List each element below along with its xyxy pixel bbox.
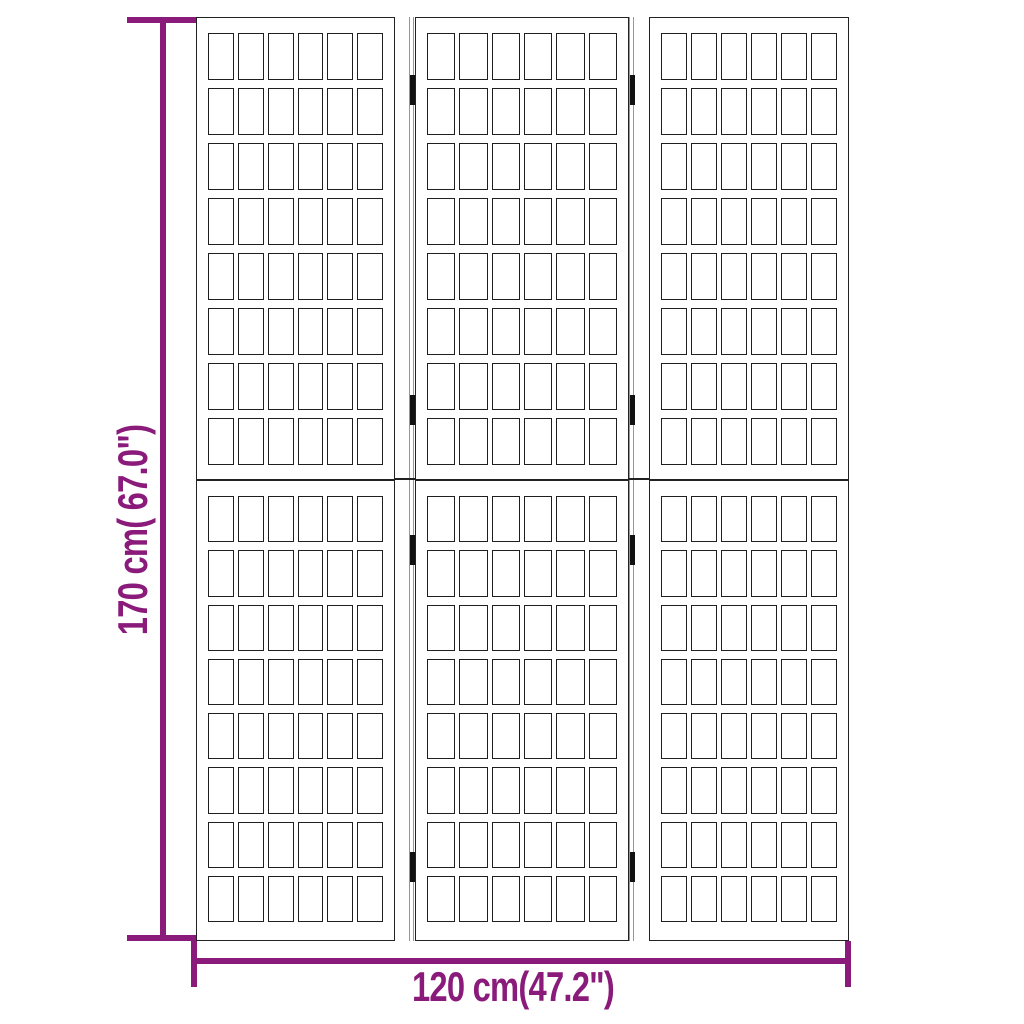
height-dimension-cap-top	[127, 17, 196, 23]
panel-upper-section	[196, 17, 395, 480]
lattice-cell	[208, 418, 234, 465]
lattice-cell	[268, 605, 294, 651]
lattice-cell	[811, 308, 837, 355]
lattice-cell	[781, 605, 807, 651]
lattice-cell	[661, 143, 687, 190]
lattice-cell	[427, 496, 455, 542]
lattice-cell	[327, 198, 353, 245]
lattice-cell	[357, 767, 383, 813]
lattice-cell	[524, 496, 552, 542]
panel-lower-section	[196, 480, 395, 941]
lattice-cell	[556, 33, 584, 80]
lattice-cell	[298, 713, 324, 759]
lattice-cell	[751, 659, 777, 705]
lattice-cell	[661, 418, 687, 465]
lattice-cell	[492, 713, 520, 759]
lattice-cell	[691, 659, 717, 705]
lattice-cell	[427, 418, 455, 465]
lattice-cell	[208, 550, 234, 596]
lattice-cell	[298, 363, 324, 410]
lattice-cell	[327, 767, 353, 813]
lattice-cell	[691, 33, 717, 80]
lattice-cell	[589, 605, 617, 651]
lattice-cell	[556, 822, 584, 868]
lattice-cell	[781, 418, 807, 465]
height-dimension-cap-bottom	[127, 935, 196, 941]
lattice-cell	[357, 659, 383, 705]
lattice-cell	[524, 253, 552, 300]
lattice-cell	[524, 822, 552, 868]
lattice-cell	[492, 605, 520, 651]
lattice-cell	[327, 496, 353, 542]
lattice-cell	[691, 143, 717, 190]
lattice-cell	[357, 33, 383, 80]
lattice-cell	[721, 253, 747, 300]
lattice-cell	[238, 496, 264, 542]
lattice-cell	[357, 496, 383, 542]
lattice-cell	[661, 198, 687, 245]
lattice-cell	[524, 88, 552, 135]
lattice-cell	[556, 876, 584, 922]
lattice-cell	[459, 822, 487, 868]
lattice-cell	[492, 363, 520, 410]
lattice-cell	[327, 253, 353, 300]
lattice-cell	[268, 88, 294, 135]
lattice-cell	[781, 308, 807, 355]
lattice-cell	[781, 496, 807, 542]
hinge-mark	[630, 75, 635, 105]
screen-panel-1	[196, 17, 395, 941]
lattice-cell	[781, 198, 807, 245]
lattice-cell	[298, 767, 324, 813]
lattice-cell	[357, 363, 383, 410]
lattice-cell	[556, 198, 584, 245]
lattice-cell	[268, 198, 294, 245]
lattice-cell	[298, 308, 324, 355]
product-dimension-diagram: 170 cm( 67.0") 120 cm(47.2")	[0, 0, 1024, 1024]
lattice-cell	[556, 496, 584, 542]
lattice-cell	[811, 822, 837, 868]
lattice-cell	[268, 876, 294, 922]
lattice-cell	[661, 876, 687, 922]
lattice-cell	[811, 550, 837, 596]
lattice-cell	[661, 308, 687, 355]
lattice-cell	[427, 363, 455, 410]
lattice-cell	[751, 876, 777, 922]
lattice-cell	[691, 767, 717, 813]
lattice-cell	[459, 496, 487, 542]
lattice-cell	[589, 363, 617, 410]
lattice-cell	[427, 33, 455, 80]
lattice-cell	[298, 33, 324, 80]
lattice-cell	[589, 496, 617, 542]
lattice-cell	[721, 659, 747, 705]
lattice-cell	[327, 88, 353, 135]
lattice-cell	[208, 363, 234, 410]
lattice-cell	[721, 822, 747, 868]
lattice-cell	[524, 33, 552, 80]
lattice-cell	[327, 418, 353, 465]
lattice-cell	[492, 659, 520, 705]
lattice-cell	[781, 876, 807, 922]
lattice-cell	[524, 876, 552, 922]
hinge-mark	[630, 535, 635, 565]
lattice-cell	[492, 33, 520, 80]
panel-lower-section	[415, 480, 629, 941]
lattice-cell	[298, 496, 324, 542]
lattice-cell	[721, 33, 747, 80]
lattice-cell	[208, 88, 234, 135]
lattice-cell	[459, 876, 487, 922]
height-dimension-line	[160, 17, 166, 941]
lattice-cell	[427, 308, 455, 355]
lattice-cell	[556, 308, 584, 355]
lattice-cell	[661, 253, 687, 300]
lattice-cell	[811, 659, 837, 705]
panel-lower-section	[649, 480, 849, 941]
lattice-grid	[427, 33, 617, 465]
lattice-cell	[459, 33, 487, 80]
lattice-cell	[781, 713, 807, 759]
lattice-cell	[208, 605, 234, 651]
lattice-cell	[589, 767, 617, 813]
lattice-cell	[427, 876, 455, 922]
lattice-cell	[208, 713, 234, 759]
lattice-cell	[524, 308, 552, 355]
lattice-grid	[661, 33, 837, 465]
lattice-cell	[661, 496, 687, 542]
lattice-cell	[208, 876, 234, 922]
lattice-cell	[691, 713, 717, 759]
lattice-cell	[208, 143, 234, 190]
lattice-cell	[811, 33, 837, 80]
lattice-cell	[751, 550, 777, 596]
hinge-mark	[410, 395, 415, 425]
lattice-cell	[589, 143, 617, 190]
lattice-grid	[208, 33, 383, 465]
lattice-cell	[811, 418, 837, 465]
lattice-cell	[589, 550, 617, 596]
lattice-cell	[357, 876, 383, 922]
lattice-cell	[357, 713, 383, 759]
hinge-mark	[630, 395, 635, 425]
lattice-cell	[298, 550, 324, 596]
lattice-cell	[556, 418, 584, 465]
lattice-cell	[556, 363, 584, 410]
lattice-cell	[268, 33, 294, 80]
lattice-cell	[238, 308, 264, 355]
lattice-cell	[459, 418, 487, 465]
lattice-cell	[238, 605, 264, 651]
lattice-cell	[208, 198, 234, 245]
lattice-cell	[524, 713, 552, 759]
lattice-cell	[268, 550, 294, 596]
lattice-cell	[298, 876, 324, 922]
lattice-cell	[781, 659, 807, 705]
lattice-cell	[721, 550, 747, 596]
lattice-cell	[751, 418, 777, 465]
lattice-cell	[238, 198, 264, 245]
width-dimension-cap-left	[191, 941, 197, 987]
lattice-grid	[661, 496, 837, 922]
panel-upper-section	[415, 17, 629, 480]
lattice-cell	[238, 822, 264, 868]
lattice-cell	[327, 876, 353, 922]
lattice-cell	[327, 363, 353, 410]
lattice-grid	[427, 496, 617, 922]
lattice-cell	[268, 143, 294, 190]
lattice-cell	[781, 253, 807, 300]
lattice-cell	[357, 198, 383, 245]
lattice-cell	[781, 767, 807, 813]
lattice-cell	[427, 253, 455, 300]
lattice-cell	[524, 659, 552, 705]
lattice-cell	[427, 605, 455, 651]
lattice-cell	[781, 550, 807, 596]
lattice-cell	[524, 767, 552, 813]
lattice-cell	[751, 713, 777, 759]
lattice-cell	[327, 33, 353, 80]
lattice-cell	[459, 88, 487, 135]
lattice-cell	[459, 605, 487, 651]
screen-panel-3	[649, 17, 849, 941]
lattice-cell	[238, 550, 264, 596]
lattice-cell	[721, 713, 747, 759]
lattice-cell	[691, 198, 717, 245]
lattice-cell	[524, 198, 552, 245]
lattice-cell	[238, 363, 264, 410]
lattice-cell	[556, 605, 584, 651]
lattice-cell	[357, 605, 383, 651]
hinge-mark	[630, 852, 635, 882]
lattice-cell	[524, 363, 552, 410]
hinge-mark	[410, 852, 415, 882]
lattice-cell	[751, 605, 777, 651]
lattice-cell	[556, 713, 584, 759]
lattice-cell	[524, 418, 552, 465]
lattice-cell	[327, 713, 353, 759]
lattice-cell	[238, 253, 264, 300]
lattice-cell	[459, 363, 487, 410]
lattice-cell	[327, 550, 353, 596]
lattice-cell	[427, 198, 455, 245]
lattice-cell	[721, 418, 747, 465]
lattice-cell	[691, 253, 717, 300]
lattice-cell	[751, 88, 777, 135]
lattice-cell	[691, 822, 717, 868]
lattice-cell	[589, 88, 617, 135]
lattice-cell	[556, 659, 584, 705]
lattice-cell	[238, 713, 264, 759]
lattice-cell	[427, 550, 455, 596]
lattice-cell	[811, 253, 837, 300]
lattice-cell	[721, 876, 747, 922]
lattice-cell	[427, 659, 455, 705]
lattice-cell	[298, 418, 324, 465]
lattice-cell	[751, 363, 777, 410]
lattice-cell	[589, 822, 617, 868]
lattice-cell	[492, 550, 520, 596]
lattice-cell	[589, 876, 617, 922]
lattice-cell	[208, 33, 234, 80]
lattice-cell	[556, 88, 584, 135]
lattice-cell	[751, 308, 777, 355]
lattice-cell	[492, 198, 520, 245]
lattice-cell	[751, 767, 777, 813]
lattice-cell	[661, 605, 687, 651]
lattice-cell	[811, 88, 837, 135]
lattice-cell	[298, 88, 324, 135]
lattice-cell	[751, 253, 777, 300]
hinge-mark	[410, 535, 415, 565]
lattice-cell	[556, 253, 584, 300]
lattice-cell	[427, 822, 455, 868]
lattice-cell	[524, 605, 552, 651]
lattice-cell	[327, 659, 353, 705]
lattice-cell	[298, 822, 324, 868]
lattice-cell	[781, 33, 807, 80]
lattice-cell	[556, 550, 584, 596]
lattice-cell	[811, 605, 837, 651]
lattice-cell	[492, 143, 520, 190]
lattice-cell	[589, 198, 617, 245]
lattice-cell	[589, 418, 617, 465]
screen-panel-2	[415, 17, 629, 941]
lattice-cell	[357, 822, 383, 868]
lattice-cell	[427, 767, 455, 813]
lattice-cell	[327, 605, 353, 651]
lattice-cell	[268, 253, 294, 300]
lattice-cell	[781, 143, 807, 190]
lattice-cell	[691, 363, 717, 410]
lattice-cell	[427, 143, 455, 190]
lattice-cell	[492, 496, 520, 542]
lattice-cell	[459, 713, 487, 759]
lattice-cell	[268, 363, 294, 410]
lattice-cell	[238, 143, 264, 190]
lattice-cell	[208, 767, 234, 813]
lattice-cell	[492, 253, 520, 300]
lattice-cell	[811, 143, 837, 190]
lattice-cell	[357, 253, 383, 300]
lattice-cell	[208, 308, 234, 355]
lattice-cell	[721, 198, 747, 245]
lattice-cell	[327, 143, 353, 190]
lattice-cell	[661, 713, 687, 759]
lattice-cell	[268, 822, 294, 868]
lattice-cell	[327, 308, 353, 355]
lattice-cell	[751, 33, 777, 80]
lattice-cell	[208, 496, 234, 542]
width-dimension-label: 120 cm(47.2")	[412, 963, 614, 1011]
mid-rail-gap-line-2	[629, 478, 649, 480]
lattice-cell	[691, 496, 717, 542]
lattice-cell	[751, 198, 777, 245]
lattice-cell	[268, 659, 294, 705]
lattice-cell	[691, 418, 717, 465]
lattice-cell	[661, 33, 687, 80]
lattice-cell	[661, 550, 687, 596]
lattice-cell	[691, 550, 717, 596]
lattice-cell	[589, 33, 617, 80]
panel-upper-section	[649, 17, 849, 480]
lattice-grid	[208, 496, 383, 922]
lattice-cell	[492, 822, 520, 868]
lattice-cell	[781, 363, 807, 410]
lattice-cell	[589, 308, 617, 355]
lattice-cell	[751, 822, 777, 868]
lattice-cell	[268, 767, 294, 813]
lattice-cell	[357, 143, 383, 190]
lattice-cell	[691, 605, 717, 651]
width-dimension-cap-right	[845, 941, 851, 987]
lattice-cell	[811, 713, 837, 759]
lattice-cell	[721, 496, 747, 542]
mid-rail-gap-line-1	[395, 478, 415, 480]
lattice-cell	[427, 88, 455, 135]
room-divider-drawing	[196, 17, 849, 941]
lattice-cell	[459, 143, 487, 190]
lattice-cell	[268, 496, 294, 542]
lattice-cell	[691, 88, 717, 135]
lattice-cell	[492, 418, 520, 465]
lattice-cell	[298, 143, 324, 190]
lattice-cell	[556, 767, 584, 813]
lattice-cell	[811, 363, 837, 410]
lattice-cell	[751, 143, 777, 190]
lattice-cell	[459, 659, 487, 705]
lattice-cell	[661, 88, 687, 135]
height-dimension-label: 170 cm( 67.0")	[109, 425, 157, 635]
lattice-cell	[238, 33, 264, 80]
lattice-cell	[691, 308, 717, 355]
lattice-cell	[811, 876, 837, 922]
lattice-cell	[811, 767, 837, 813]
lattice-cell	[524, 143, 552, 190]
lattice-cell	[556, 143, 584, 190]
lattice-cell	[427, 713, 455, 759]
lattice-cell	[357, 550, 383, 596]
lattice-cell	[357, 88, 383, 135]
lattice-cell	[327, 822, 353, 868]
lattice-cell	[298, 659, 324, 705]
lattice-cell	[721, 88, 747, 135]
lattice-cell	[811, 496, 837, 542]
lattice-cell	[751, 496, 777, 542]
lattice-cell	[661, 659, 687, 705]
lattice-cell	[268, 713, 294, 759]
lattice-cell	[721, 767, 747, 813]
lattice-cell	[298, 198, 324, 245]
lattice-cell	[459, 253, 487, 300]
lattice-cell	[492, 767, 520, 813]
lattice-cell	[721, 605, 747, 651]
lattice-cell	[459, 550, 487, 596]
lattice-cell	[661, 767, 687, 813]
lattice-cell	[589, 253, 617, 300]
lattice-cell	[238, 767, 264, 813]
lattice-cell	[721, 363, 747, 410]
lattice-cell	[208, 822, 234, 868]
lattice-cell	[298, 605, 324, 651]
lattice-cell	[524, 550, 552, 596]
lattice-cell	[459, 767, 487, 813]
lattice-cell	[589, 659, 617, 705]
lattice-cell	[208, 253, 234, 300]
lattice-cell	[811, 198, 837, 245]
lattice-cell	[492, 876, 520, 922]
lattice-cell	[691, 876, 717, 922]
